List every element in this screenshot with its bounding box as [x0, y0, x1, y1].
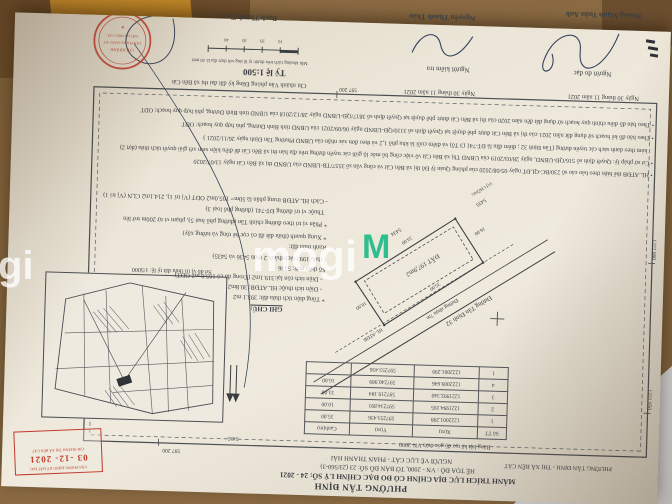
neighbor-owner-label: VỢ CHỒNG: [470, 181, 493, 198]
cell: 35.00: [305, 410, 350, 423]
cell: 597219.184: [350, 387, 413, 401]
grid-label-left-mid: 1222 000: [650, 239, 657, 260]
dim-bottom-label: 33.00: [400, 235, 413, 245]
parcel-ref-label: 5435: [228, 435, 239, 441]
cell: 3: [478, 391, 507, 404]
cell: 1222009.646: [414, 377, 479, 391]
cell: 2: [478, 403, 507, 416]
cell: 1221992.340: [413, 389, 478, 403]
inset-map-art: [44, 274, 226, 421]
photo-of-document: PHƯỜNG TÂN ĐỊNH MẢNH TRÍCH LỤC ĐỊA CHÍNH…: [0, 0, 672, 504]
grid-label-left-top: 1221 950: [646, 389, 653, 410]
grid-label-top: 597 200: [162, 447, 180, 454]
date-stamp-box: VĂN PHÒNG ĐĂNG KÝ ĐẤT ĐAI 03 -12- 2021 C…: [13, 428, 103, 475]
round-stamp-line1: CHI NHÁNH: [110, 47, 134, 53]
corridor-label: HL-ATĐB: [361, 326, 382, 342]
cell: 597240.989: [351, 375, 414, 389]
signature3-name: Bạch Thanh Trọng: [217, 12, 278, 22]
round-stamp-line3: ĐẤT ĐAI BẾN CÁT: [106, 33, 138, 39]
col-x: X(m): [412, 425, 477, 439]
signature2-date: Ngày 30 tháng 11 năm 2021: [404, 87, 475, 96]
signature-checker: [412, 34, 473, 56]
grid-cross: [490, 312, 504, 326]
cell: 10.00: [305, 398, 350, 411]
scale-label: Tỷ lệ 1:500: [243, 66, 286, 77]
cell: 1221994.195: [413, 401, 478, 415]
cell: 597253.436: [351, 363, 414, 377]
col-y: Y(m): [349, 423, 412, 437]
grid-label-bottom: 597 200: [339, 86, 357, 93]
scale-bar-numbers: 10 20 30 40: [223, 38, 282, 45]
svg-text:20: 20: [259, 39, 264, 44]
round-red-stamp: CHI NHÁNH VĂN PHÒNG ĐĂNG KÝ ĐẤT ĐAI BẾN …: [94, 12, 152, 69]
cell: 597234.891: [350, 399, 413, 413]
signature2-name: Nguyễn Thanh Thảo: [409, 12, 475, 22]
coord-table: Số TT X(m) Y(m) Cạnh(m) 11222001.2995972…: [304, 361, 509, 440]
cell: 1: [478, 415, 507, 428]
signature1-date: Ngày 30 tháng 11 năm 2021: [568, 92, 639, 101]
watermark-text: mogi: [252, 232, 357, 282]
cell: 597253.436: [350, 411, 413, 425]
svg-text:30: 30: [241, 38, 246, 43]
dim-right-label: 10.00: [354, 300, 367, 310]
north-arrow: [227, 365, 240, 401]
cell: 1222001.299: [413, 413, 478, 427]
scale-bar: [208, 45, 298, 55]
watermark-m-icon: M: [362, 228, 390, 267]
watermark-text-partial: mogi: [0, 244, 34, 289]
cell: [306, 362, 351, 375]
round-stamp-line2: VĂN PHÒNG ĐĂNG KÝ: [103, 40, 142, 46]
neighbor-left-label: 5435: [474, 197, 487, 208]
cell: 4: [479, 379, 508, 392]
signature1-name: Hoàng Mạnh Tuấn Anh: [566, 9, 642, 19]
col-stt: Số TT: [477, 427, 506, 440]
cell: 1222001.299: [414, 365, 479, 379]
round-stamp-star: ✶: [121, 24, 125, 30]
signature-surveyor: [543, 32, 619, 73]
signature2-role: Người kiểm tra: [427, 64, 470, 73]
cell: 16.00: [306, 374, 351, 387]
svg-text:40: 40: [223, 38, 228, 43]
road-name-label: Đường Tân Định 32: [444, 294, 493, 327]
notes-heading: GHI CHÚ:: [250, 304, 283, 312]
neighbor-bottom-label: 5434: [389, 226, 402, 237]
dim-left-label: 16.00: [473, 225, 486, 235]
cell: 33.00: [305, 386, 350, 399]
date-stamp-line1: VĂN PHÒNG ĐĂNG KÝ ĐẤT ĐAI: [16, 464, 102, 471]
signature1-role: Người đo đạc: [573, 68, 611, 77]
date-stamp-date: 03 -12- 2021: [15, 452, 101, 465]
col-canh: Cạnh(m): [304, 422, 349, 435]
parcel-area-label: ĐẤT 197,9m2: [405, 252, 441, 278]
location-inset-map: [41, 271, 227, 422]
cell: 1: [479, 367, 508, 380]
svg-text:10: 10: [277, 39, 282, 44]
